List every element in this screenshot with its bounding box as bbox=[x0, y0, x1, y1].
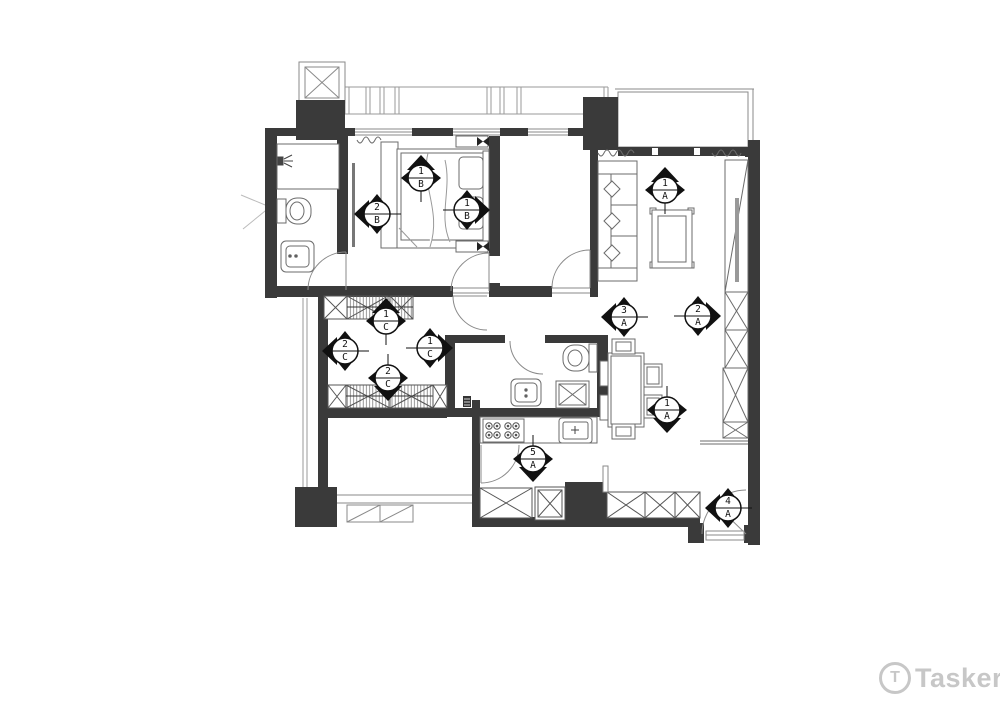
shaft-x-box-icon bbox=[299, 62, 345, 103]
balcony-window bbox=[615, 89, 754, 150]
lower-room-window bbox=[337, 495, 472, 522]
elevation-marker-arrow bbox=[353, 190, 401, 238]
elevation-marker-2A-right: 2 A bbox=[674, 292, 722, 340]
marker-number: 3 bbox=[600, 306, 648, 316]
marker-number: 1 bbox=[397, 167, 445, 177]
curtain-icon bbox=[357, 137, 381, 143]
marker-letter: C bbox=[321, 353, 369, 363]
marker-number: 5 bbox=[509, 448, 557, 458]
pillow-icon bbox=[459, 157, 483, 189]
elevation-marker-arrow bbox=[397, 154, 445, 202]
shower-icon bbox=[277, 144, 339, 189]
elevation-marker-arrow bbox=[641, 166, 689, 214]
marker-letter: A bbox=[600, 319, 648, 329]
hall-door-swing-icon bbox=[453, 296, 487, 330]
x-cabinet-icon bbox=[324, 296, 347, 319]
bathroom-2 bbox=[463, 344, 597, 408]
sink-icon bbox=[511, 379, 541, 406]
marker-letter: C bbox=[406, 350, 454, 360]
sofa-icon bbox=[598, 161, 637, 281]
elevation-marker-2B-left: 2 B bbox=[353, 190, 401, 238]
marker-letter: B bbox=[353, 216, 401, 226]
elevation-marker-1C-up: 1 C bbox=[362, 297, 410, 345]
marker-number: 2 bbox=[321, 340, 369, 350]
elevation-marker-2C-down: 2 C bbox=[364, 354, 412, 402]
floor-drain-icon bbox=[463, 396, 471, 407]
bedroom-door-swing-icon bbox=[451, 253, 489, 293]
coffee-table-icon bbox=[650, 208, 694, 268]
kitchen-sink-icon bbox=[559, 418, 592, 443]
elevation-marker-arrow bbox=[674, 292, 722, 340]
marker-letter: A bbox=[641, 192, 689, 202]
floor-plan-drawing bbox=[0, 0, 1000, 706]
marker-letter: A bbox=[674, 318, 722, 328]
elevation-marker-2C-left: 2 C bbox=[321, 327, 369, 375]
marker-letter: A bbox=[704, 510, 752, 520]
elevation-marker-arrow bbox=[443, 186, 491, 234]
elevation-marker-arrow bbox=[704, 484, 752, 532]
elevation-marker-arrow bbox=[509, 435, 557, 483]
marker-letter: A bbox=[509, 461, 557, 471]
marker-letter: C bbox=[362, 323, 410, 333]
elevation-marker-arrow bbox=[406, 324, 454, 372]
marker-number: 2 bbox=[674, 305, 722, 315]
bedroom-windows bbox=[355, 128, 568, 136]
elevation-marker-arrow bbox=[364, 354, 412, 402]
watermark: T Tasker bbox=[879, 662, 1000, 694]
tv-icon bbox=[735, 198, 739, 282]
elevation-marker-arrow bbox=[321, 327, 369, 375]
marker-letter: A bbox=[643, 412, 691, 422]
x-cabinet-icon bbox=[480, 488, 532, 518]
marker-number: 1 bbox=[641, 179, 689, 189]
x-cabinet-icon bbox=[433, 385, 447, 408]
floor-plan-canvas: 1 B 2 B 1 B 1 C 2 C 1 C 2 C bbox=[0, 0, 1000, 706]
washing-machine-icon bbox=[556, 381, 589, 408]
marker-number: 1 bbox=[362, 310, 410, 320]
elevation-marker-arrow bbox=[362, 297, 410, 345]
watermark-brand: Tasker bbox=[915, 663, 1000, 694]
elevation-marker-1A-down: 1 A bbox=[643, 386, 691, 434]
elevation-marker-1A-up: 1 A bbox=[641, 166, 689, 214]
elevation-marker-5A-down: 5 A bbox=[509, 435, 557, 483]
middle-room-door-swing-icon bbox=[552, 250, 590, 293]
elevation-marker-arrow bbox=[643, 386, 691, 434]
tasker-logo-icon: T bbox=[879, 662, 911, 694]
marker-number: 1 bbox=[406, 337, 454, 347]
elevation-marker-3A-left: 3 A bbox=[600, 293, 648, 341]
elevation-marker-1B-up: 1 B bbox=[397, 154, 445, 202]
marker-letter: B bbox=[397, 180, 445, 190]
x-cabinet-icon bbox=[535, 487, 565, 520]
marker-number: 2 bbox=[364, 367, 412, 377]
bathroom2-door-swing-icon bbox=[510, 341, 543, 374]
wall-stub bbox=[603, 466, 608, 492]
elevation-marker-1C-right: 1 C bbox=[406, 324, 454, 372]
shoe-cabinet-icon bbox=[607, 492, 700, 518]
elevation-marker-1B-right: 1 B bbox=[443, 186, 491, 234]
marker-number: 2 bbox=[353, 203, 401, 213]
bathroom-1 bbox=[277, 144, 339, 272]
toilet-icon bbox=[277, 198, 311, 224]
toilet-icon bbox=[563, 344, 597, 372]
elevation-marker-arrow bbox=[600, 293, 648, 341]
elevation-marker-4A-left: 4 A bbox=[704, 484, 752, 532]
marker-number: 1 bbox=[443, 199, 491, 209]
marker-letter: C bbox=[364, 380, 412, 390]
marker-letter: B bbox=[443, 212, 491, 222]
marker-number: 4 bbox=[704, 497, 752, 507]
sink-icon bbox=[281, 241, 314, 272]
x-cabinet-icon bbox=[328, 385, 346, 408]
marker-number: 1 bbox=[643, 399, 691, 409]
